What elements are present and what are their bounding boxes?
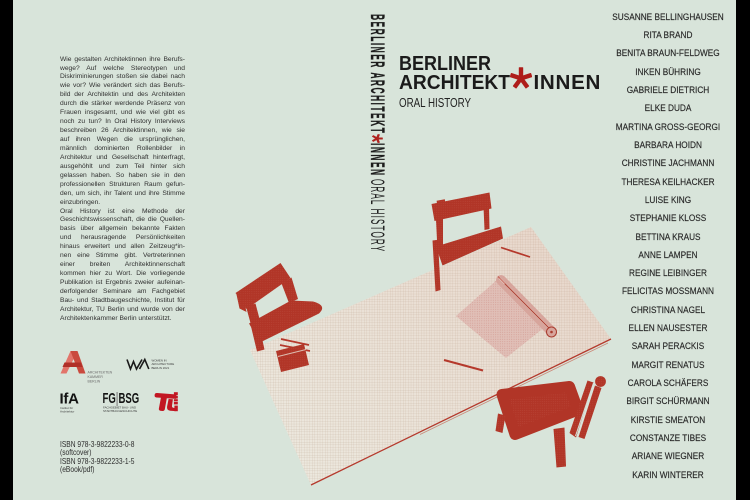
svg-text:ARCHITEKTEN: ARCHITEKTEN <box>88 371 113 375</box>
svg-text:FG|BSG: FG|BSG <box>103 390 140 407</box>
svg-text:BERLIN: BERLIN <box>88 380 101 384</box>
svg-text:KAMMER: KAMMER <box>88 375 104 379</box>
svg-text:Architektur: Architektur <box>60 410 74 414</box>
svg-text:STADTBAUGESCHICHTE: STADTBAUGESCHICHTE <box>103 409 137 413</box>
svg-text:BERLIN 2021: BERLIN 2021 <box>152 366 170 370</box>
svg-text:IfA: IfA <box>60 391 80 408</box>
